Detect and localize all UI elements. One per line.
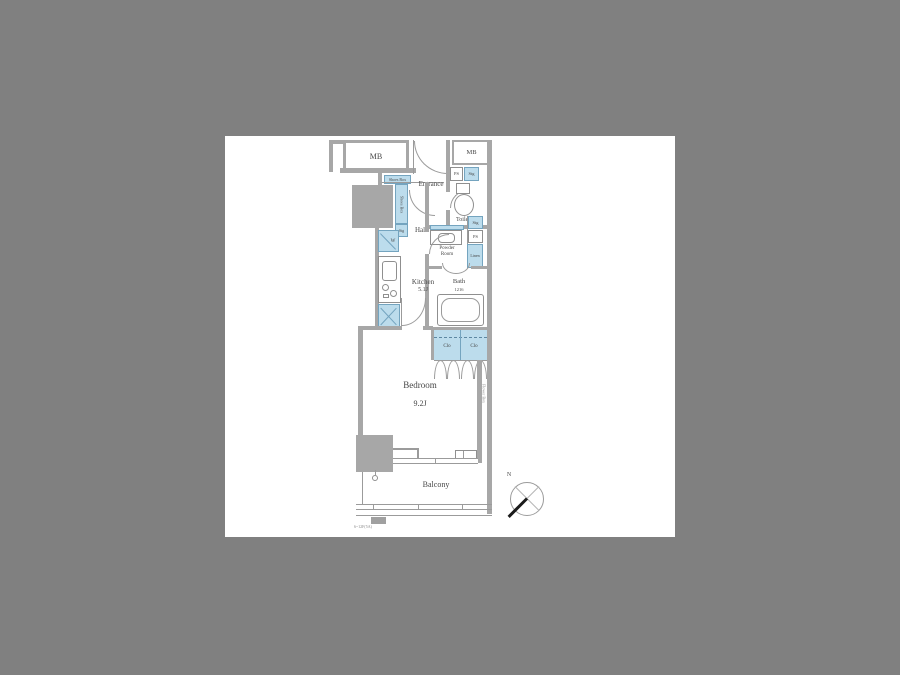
stove-burner xyxy=(382,284,389,291)
linen-label: Linen xyxy=(468,254,482,259)
stove-burner xyxy=(390,290,397,297)
kitchen-counter xyxy=(378,256,401,303)
closet-door-swing xyxy=(447,360,460,379)
washer-label: W xyxy=(389,239,397,245)
balcony-rail-line xyxy=(356,509,492,510)
bedroom-door-arc xyxy=(402,298,426,326)
balcony-rail-tick xyxy=(462,504,463,510)
balcony-rail-line xyxy=(356,504,492,505)
toilet-tank xyxy=(456,183,470,194)
storage-toilet: Stg xyxy=(468,216,483,229)
room-label-bedroom: Bedroom xyxy=(370,380,470,390)
footnote-text: 6~12F(5A) xyxy=(354,525,402,530)
closet-door-swing xyxy=(461,360,474,379)
storage-upper: Stg xyxy=(464,167,479,181)
wall xyxy=(378,173,382,185)
room-label: MB xyxy=(346,152,406,161)
pipe-space-toilet: PS xyxy=(468,230,483,243)
floorplan-image: MB MB PS Stg Shoes Box Shoes Box xyxy=(0,0,900,675)
wall-line xyxy=(393,448,419,450)
bathtub xyxy=(437,294,484,326)
shoes-box-label: Shoes Box xyxy=(399,187,404,223)
stg-label: Stg xyxy=(469,220,482,225)
meter-box-right: MB xyxy=(452,140,491,165)
room-label-powder: Powder Room xyxy=(428,246,466,258)
toilet-bowl xyxy=(454,194,474,216)
wall xyxy=(329,140,333,172)
bath-folding-door xyxy=(442,263,456,274)
entrance-door-arc xyxy=(414,141,448,174)
shoes-box-side: Shoes Box xyxy=(395,184,408,224)
ps-label: PS xyxy=(451,171,462,176)
pillar xyxy=(356,435,393,472)
room-label-balcony: Balcony xyxy=(396,480,476,489)
wall xyxy=(471,266,487,269)
wall xyxy=(375,326,402,330)
balcony-side-line xyxy=(362,472,363,505)
bathtub-inner xyxy=(441,298,480,322)
room-label-kitchen: Kitchen xyxy=(401,278,445,286)
balcony-rail-tick xyxy=(373,504,374,510)
floorplan-canvas: MB MB PS Stg Shoes Box Shoes Box xyxy=(225,136,675,537)
powder-line2: Room xyxy=(428,252,466,258)
wall xyxy=(487,140,492,514)
stg-label: Stg xyxy=(465,171,478,176)
balcony-hatch-box xyxy=(371,517,386,524)
bedroom-size-label: 9.2J xyxy=(370,399,470,408)
refrigerator-space xyxy=(378,304,400,328)
kitchen-size-label: 5.1J xyxy=(401,287,445,294)
pillar xyxy=(352,185,393,228)
pipe-space: PS xyxy=(450,167,463,181)
drain-symbol xyxy=(372,475,378,481)
compass-north-label: N xyxy=(503,472,515,479)
closet-label: Clo xyxy=(434,344,460,350)
stove-grill xyxy=(383,294,389,298)
closet-label: Clo xyxy=(461,344,487,350)
window-mullion xyxy=(435,458,436,464)
kitchen-sink xyxy=(382,261,397,281)
flower-box-label: Flower Box xyxy=(481,370,486,416)
balcony-rail-tick xyxy=(418,504,419,510)
drain-stem xyxy=(375,470,376,475)
wall xyxy=(429,266,442,269)
balcony-outer-line xyxy=(356,515,492,516)
closet: Clo Clo xyxy=(434,330,487,360)
bath-folding-door xyxy=(456,263,470,274)
washer-pan: W xyxy=(378,230,399,252)
room-label-entrance: Entrance xyxy=(405,180,457,188)
hall-door-arc xyxy=(409,190,435,216)
wall xyxy=(358,330,363,437)
room-label: MB xyxy=(454,149,489,156)
closet-door-swing xyxy=(434,360,447,379)
ps-label: PS xyxy=(469,234,482,239)
